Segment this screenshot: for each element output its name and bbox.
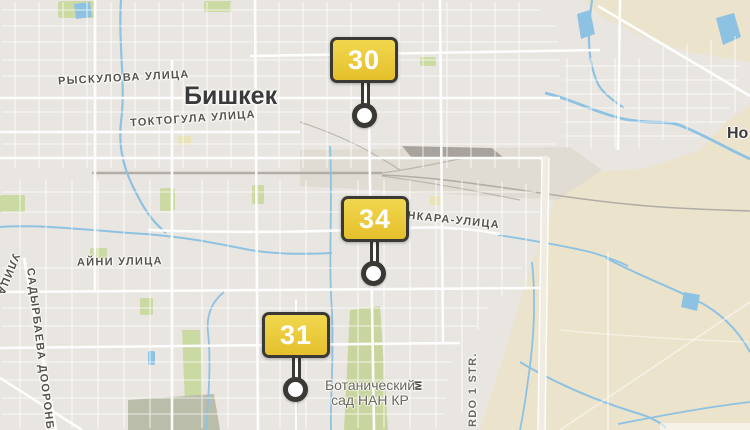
- marker-34-pin[interactable]: [361, 261, 386, 286]
- marker-34-label: 34: [359, 204, 391, 234]
- marker-34-sign[interactable]: 34: [341, 196, 409, 242]
- street-label-aini: АЙНИ УЛИЦА: [77, 255, 163, 268]
- marker-31-sign[interactable]: 31: [262, 312, 330, 358]
- marker-30-label: 30: [348, 45, 380, 75]
- map-canvas[interactable]: Бишкек РЫСКУЛОВА УЛИЦА ТОКТОГУЛА УЛИЦА А…: [0, 0, 750, 430]
- poi-label-line1: Ботанический: [325, 377, 415, 393]
- town-label-partial: Но: [727, 125, 748, 143]
- poi-label-botanical-garden: Ботанический сад НАН КР: [305, 378, 435, 408]
- map-marker-34[interactable]: 34: [341, 196, 409, 242]
- map-marker-31[interactable]: 31: [262, 312, 330, 358]
- marker-30-sign[interactable]: 30: [330, 37, 398, 83]
- marker-31-pin[interactable]: [283, 377, 308, 402]
- city-label-bishkek: Бишкек: [184, 82, 277, 111]
- street-label-rdo-1-str: RDO 1 STR.: [467, 351, 479, 427]
- marker-31-label: 31: [280, 320, 312, 350]
- marker-30-pin[interactable]: [352, 103, 377, 128]
- bottom-right-overlay-fragment: [660, 423, 750, 430]
- poi-label-line2: сад НАН КР: [331, 392, 409, 408]
- map-marker-30[interactable]: 30: [330, 37, 398, 83]
